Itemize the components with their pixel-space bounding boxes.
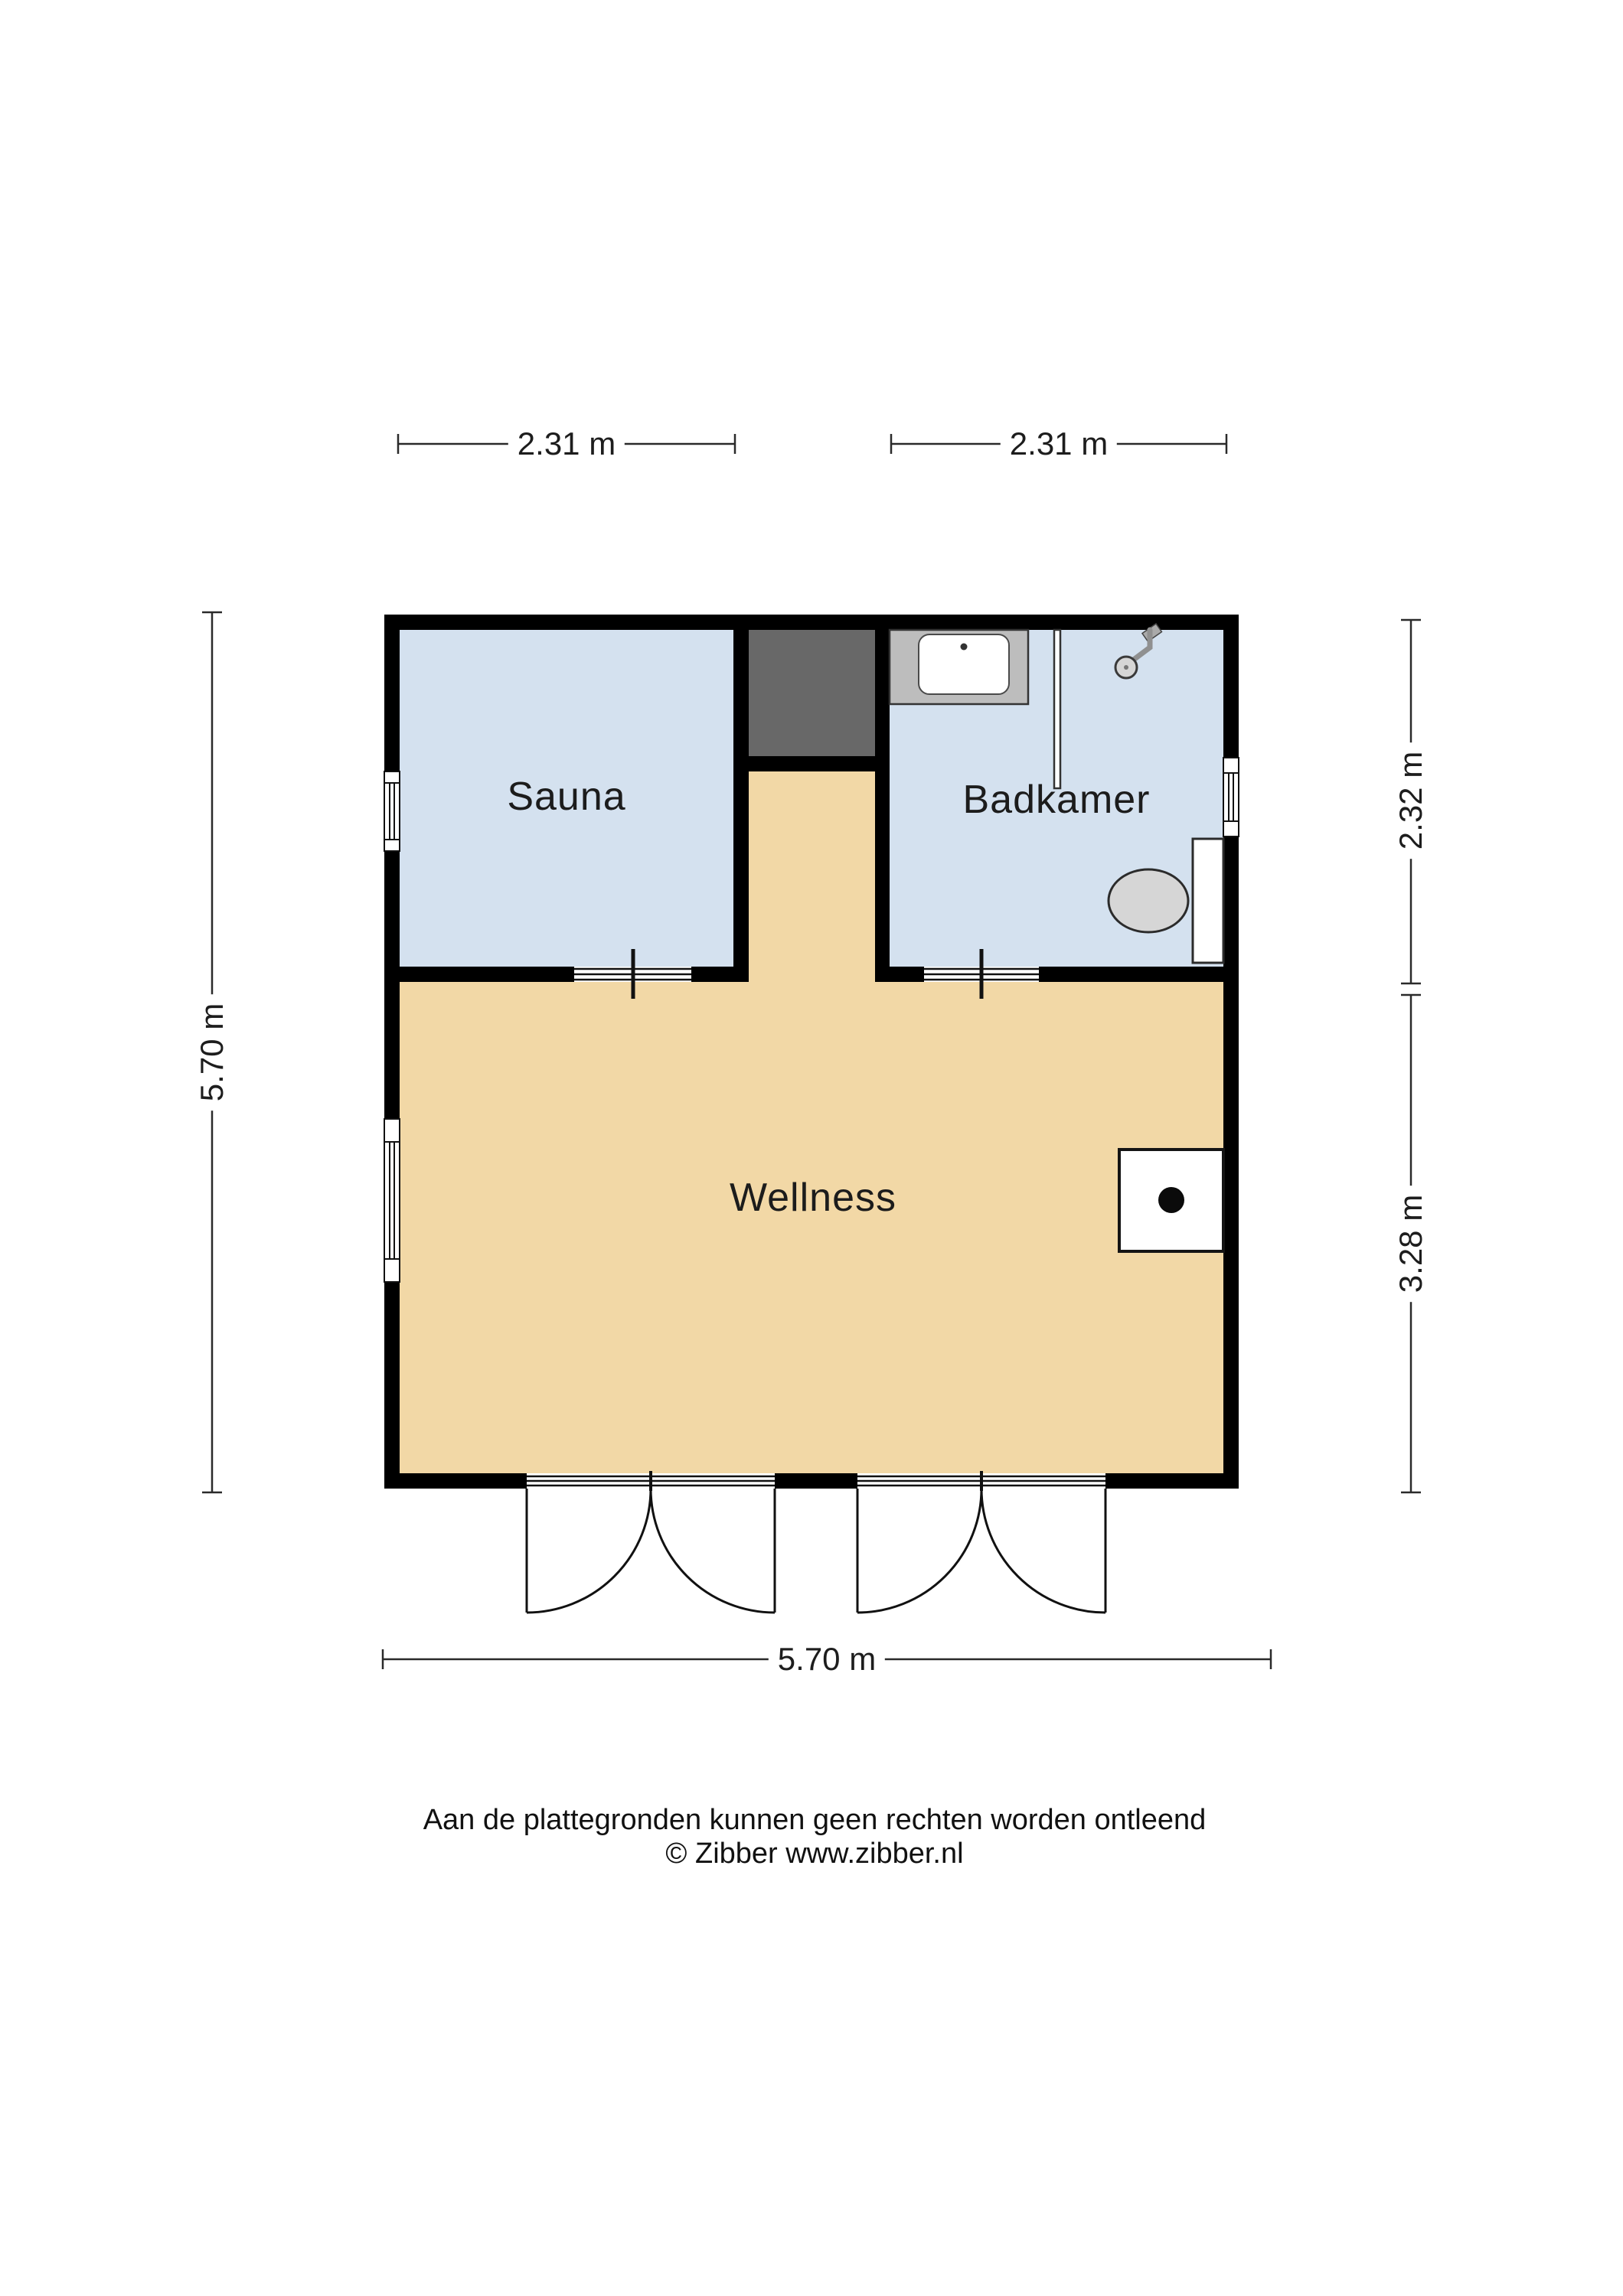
shower-screen-icon [1054,630,1060,788]
dim-label-right-upper: 2.32 m [1393,742,1429,859]
sauna-heater-block [749,630,875,756]
wellness-window-icon [384,1119,400,1282]
room-label-sauna: Sauna [507,777,625,817]
footer-disclaimer: Aan de plattegronden kunnen geen rechten… [423,1805,1207,1835]
left-double-swing-door-icon [527,1471,775,1613]
floor-plan-drawing [0,0,1623,2296]
dim-label-top-right: 2.31 m [1001,426,1117,461]
floor-plan-page: 2.31 m 2.31 m 5.70 m 2.32 m 3.28 m 5.70 … [0,0,1623,2296]
shower-tray-icon [890,630,1028,704]
dim-label-left: 5.70 m [194,994,230,1110]
dim-label-bottom: 5.70 m [769,1642,885,1677]
hallway-floor [749,771,875,982]
room-label-wellness: Wellness [730,1178,896,1218]
dim-label-right-lower: 3.28 m [1393,1186,1429,1302]
sauna-window-icon [384,771,400,851]
stove-icon [1119,1150,1223,1251]
footer-copyright: © Zibber www.zibber.nl [665,1839,963,1868]
room-wellness-floor [400,982,1223,1473]
badkamer-window-icon [1223,758,1239,837]
right-double-swing-door-icon [857,1471,1105,1613]
room-label-badkamer: Badkamer [963,780,1151,820]
dim-label-top-left: 2.31 m [508,426,625,461]
